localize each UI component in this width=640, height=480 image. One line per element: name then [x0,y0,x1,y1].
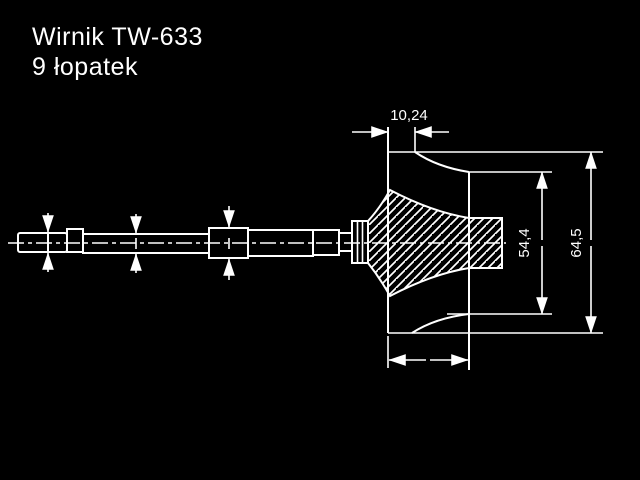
dimension-label-wheel-diameter: 64,5 [568,228,585,257]
dimension-wheel-diameter: 64,5 [568,152,591,333]
shroud-contour-top [415,152,469,172]
dimension-inducer-width: 10,24 [352,107,449,152]
dimension-wheel-width [388,336,468,368]
shaft [18,221,368,263]
seal-ring-collar [352,221,368,263]
shaft-shoulder [67,229,83,252]
dimension-label-inducer-width: 10,24 [390,107,428,124]
shroud-contour-bottom [412,314,469,333]
rotor-technical-drawing: 10,24 54,4 64,5 [0,0,640,480]
drawing-canvas: Wirnik TW-633 9 łopatek [0,0,640,480]
dimension-label-exducer-diameter: 54,4 [516,228,533,257]
shaft-neck [339,233,352,251]
